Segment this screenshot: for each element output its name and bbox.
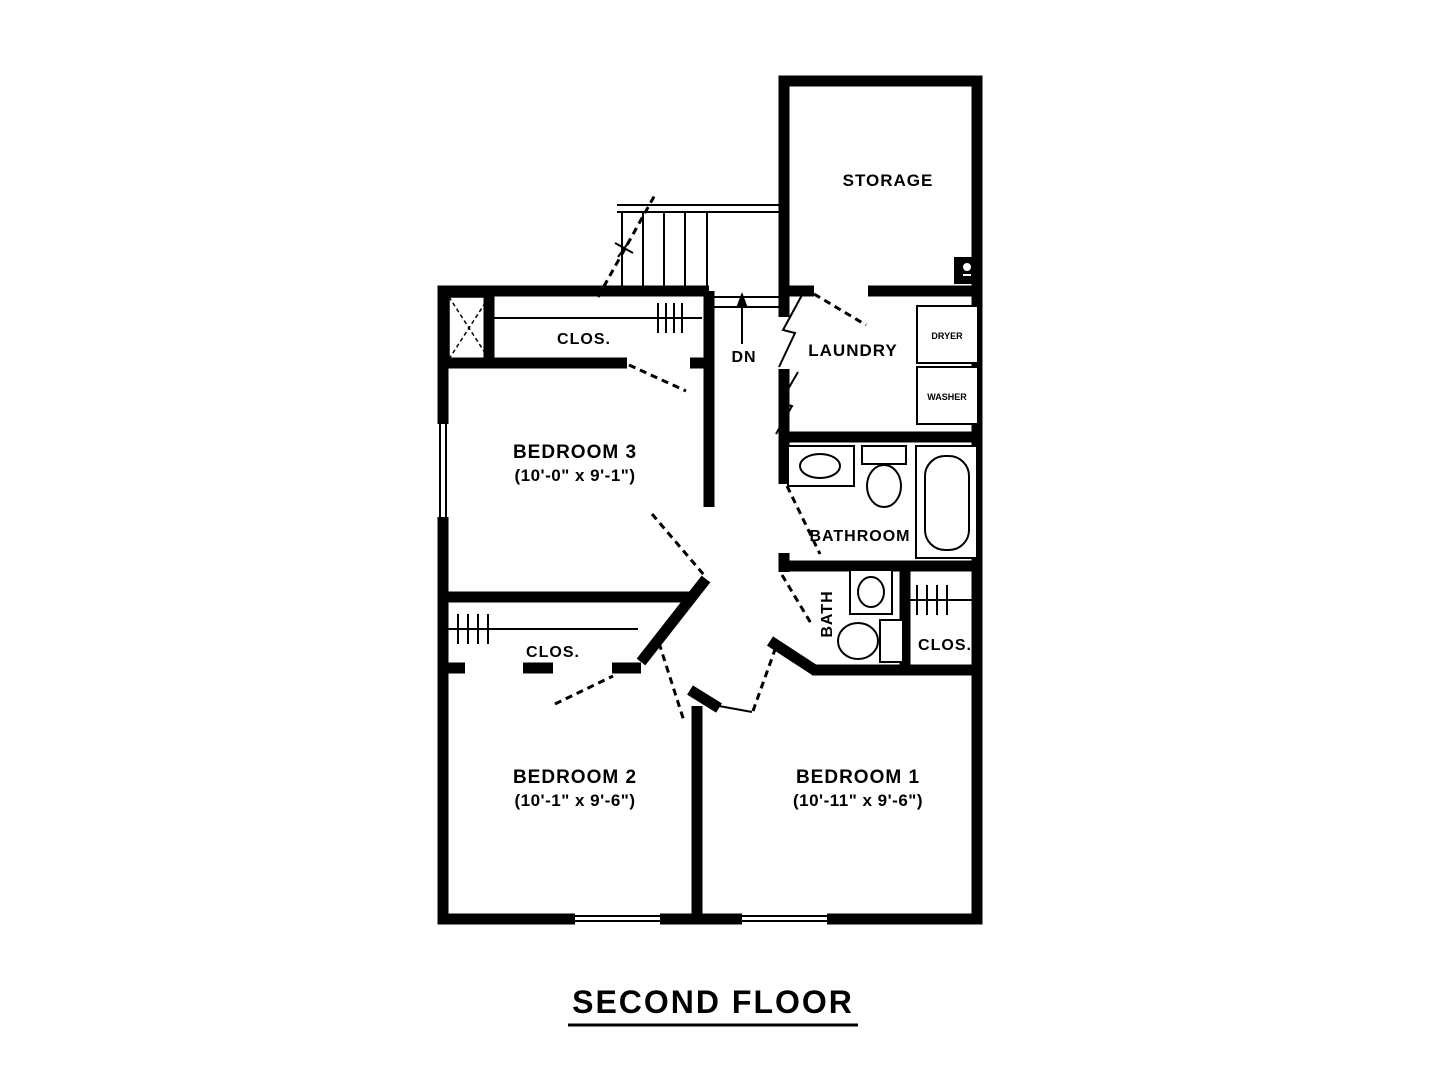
bath-fixtures [838, 570, 903, 662]
bedroom1-label: BEDROOM 1 [796, 767, 920, 788]
bedroom2-dimensions: (10'-1" x 9'-6") [514, 791, 635, 810]
bathroom-label: BATHROOM [809, 528, 910, 545]
bedroom2-closet: CLOS. [446, 614, 638, 661]
bedroom2-closet-label: CLOS. [526, 644, 580, 661]
stairs-down-label: DN [731, 349, 756, 366]
floor-plan-drawing: DN CLOS. CLOS. [0, 0, 1440, 1080]
storage-label: STORAGE [843, 171, 934, 190]
bath-door [782, 575, 812, 625]
interior-walls [443, 291, 977, 919]
sink-icon [800, 454, 840, 478]
storage-panel-icon [954, 257, 981, 284]
laundry-appliances: DRYER WASHER [917, 306, 978, 424]
bedroom2-label: BEDROOM 2 [513, 767, 637, 788]
washer-label: WASHER [927, 392, 967, 402]
bedroom3-label: BEDROOM 3 [513, 442, 637, 463]
bedroom3-door [652, 514, 704, 575]
drawing-title: SECOND FLOOR [568, 984, 858, 1025]
down-arrow-icon [736, 292, 748, 344]
windows [436, 424, 827, 925]
bath-label: BATH [819, 590, 836, 637]
bedroom1-closet-label: CLOS. [918, 637, 972, 654]
bedroom1-door [753, 644, 777, 711]
floor-plan-page: DN CLOS. CLOS. [0, 0, 1440, 1080]
toilet-icon [838, 620, 903, 662]
bedroom3-dimensions: (10'-0" x 9'-1") [514, 466, 635, 485]
bathtub-icon [916, 446, 977, 558]
hall-door [659, 643, 684, 721]
stairs: DN [598, 193, 784, 366]
page-title: SECOND FLOOR [572, 984, 854, 1020]
storage-door [814, 294, 866, 325]
bedroom1-closet: CLOS. [908, 585, 974, 654]
toilet-icon [862, 446, 906, 507]
bedroom1-dimensions: (10'-11" x 9'-6") [793, 791, 923, 810]
sink-icon [858, 577, 884, 607]
dryer-label: DRYER [931, 331, 963, 341]
laundry-label: LAUNDRY [808, 341, 897, 360]
bedroom3-closet-label: CLOS. [557, 331, 611, 348]
bedroom3-closet-door [629, 365, 686, 391]
bedroom2-door [555, 676, 613, 704]
